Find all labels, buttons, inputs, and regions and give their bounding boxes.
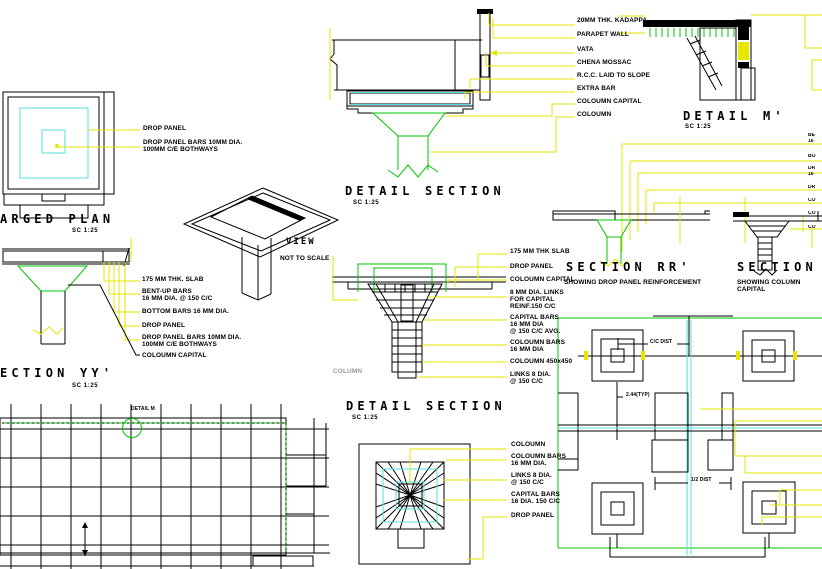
ref-detail-m: DETAIL M [131,407,155,412]
title-detail-m-prime: DETAIL M' [683,109,786,123]
callout-cap-column-bars: COLOUMN BARS 16 MM DIA [510,340,565,354]
callout-cap-column-capital: COLOUMN CAPITAL [510,277,575,284]
scale-section-yy: SC 1:25 [72,383,98,389]
scale-capital-detail-section: SC 1:25 [352,415,378,421]
callout-kadappa: 20MM THK. KADAPPA [577,18,647,25]
callout-column-capital: COLOUMN CAPITAL [577,99,642,106]
enlarged-plan-drawing [3,92,140,218]
edge-fragment: DR [808,166,822,171]
edge-fragment: 16 [808,172,822,177]
callout-cap-slab: 175 MM THK SLAB [510,249,570,256]
scale-detail-m-prime: SC 1:25 [685,124,711,130]
section-rr-drawing [553,197,745,266]
callout-yy-slab: 175 MM THK. SLAB [142,277,204,284]
floor-plan-drawing [0,404,330,569]
capital-plan-drawing [359,444,507,564]
edge-leader-lines [622,144,822,252]
title-section-right: SECTION [737,260,817,274]
callout-extra-bar: EXTRA BAR [577,86,616,93]
callout-column: COLOUMN [577,112,611,119]
roof-detail-drawing [330,9,575,177]
dim-cc-dist: C/C DIST [650,340,672,345]
subtitle-not-to-scale: NOT TO SCALE [280,256,329,263]
callout-plan-column: COLOUMN [511,442,545,449]
scale-enlarged-plan: SC 1:25 [72,228,98,234]
title-capital-detail-section: DETAIL SECTION [346,399,506,413]
callout-cap-column-size: COLOUMN 450x450 [510,359,572,366]
column-layout-drawing [558,316,822,557]
edge-fragment: CO [808,198,822,203]
callout-yy-drop-panel: DROP PANEL [142,323,185,330]
callout-cap-capital-bars: CAPITAL BARS 16 MM DIA @ 150 C/C AVG. [510,315,560,335]
title-section-yy: ECTION YY' [0,366,114,380]
capital-section-drawing [332,254,507,378]
subtitle-section-right: SHOWING COLUMN CAPITAL [737,280,822,294]
detail-m-drawing [618,15,822,100]
dim-typ: 2.44(TYP) [626,393,650,398]
callout-cap-links: 8 MM DIA. LINKS FOR CAPITAL REINF.150 C/… [510,290,564,310]
callout-vata: VATA [577,47,594,54]
edge-fragment: BO [808,154,822,159]
callout-rcc-slope: R.C.C. LAID TO SLOPE [577,73,650,80]
dim-half-dist: 1/2 DIST [691,478,712,483]
callout-cap-links2: LINKS 8 DIA. @ 150 C/C [510,372,551,386]
subtitle-section-rr: SHOWING DROP PANEL REINFORCEMENT [564,280,701,287]
callout-yy-drop-panel-bars: DROP PANEL BARS 10MM DIA. 100MM C/E BOTH… [142,335,241,349]
callout-chena-mosaic: CHENA MOSSAC [577,60,631,67]
title-section-rr: SECTION RR' [566,260,692,274]
callout-yy-bottom-bars: BOTTOM BARS 16 MM DIA. [142,309,229,316]
scale-roof-detail-section: SC 1:25 [353,200,379,206]
cad-drawing-sheet: DROP PANEL DROP PANEL BARS 10MM DIA. 100… [0,0,822,569]
title-roof-detail-section: DETAIL SECTION [345,184,505,198]
callout-drop-panel-bars: DROP PANEL BARS 10MM DIA. 100MM C/E BOTH… [143,140,242,154]
callout-plan-column-bars: COLOUMN BARS 16 MM DIA. [511,454,566,468]
section-yy-drawing [2,238,140,355]
ghost-column-label: COLUMN [333,369,362,376]
edge-fragment: CO [808,225,822,230]
edge-fragment: BE [808,133,822,138]
edge-fragment: DR [808,185,822,190]
callout-cap-drop-panel: DROP PANEL [510,264,553,271]
callout-plan-links: LINKS 8 DIA. @ 150 C/C [511,473,552,487]
callout-parapet-wall: PARAPET WALL [577,32,629,39]
edge-fragment: 16 [808,139,822,144]
callout-yy-column-capital: COLOUMN CAPITAL [142,353,207,360]
edge-fragment: CO [808,211,822,216]
title-view: VIEW [286,237,316,247]
title-enlarged-plan: ARGED PLAN [0,212,114,226]
callout-plan-capital-bars: CAPITAL BARS 16 DIA. 150 C/C [511,492,560,506]
callout-yy-bentup-bars: BENT-UP BARS 16 MM DIA. @ 150 C/C [142,289,212,303]
callout-plan-drop-panel: DROP PANEL [511,513,554,520]
callout-drop-panel: DROP PANEL [143,126,186,133]
